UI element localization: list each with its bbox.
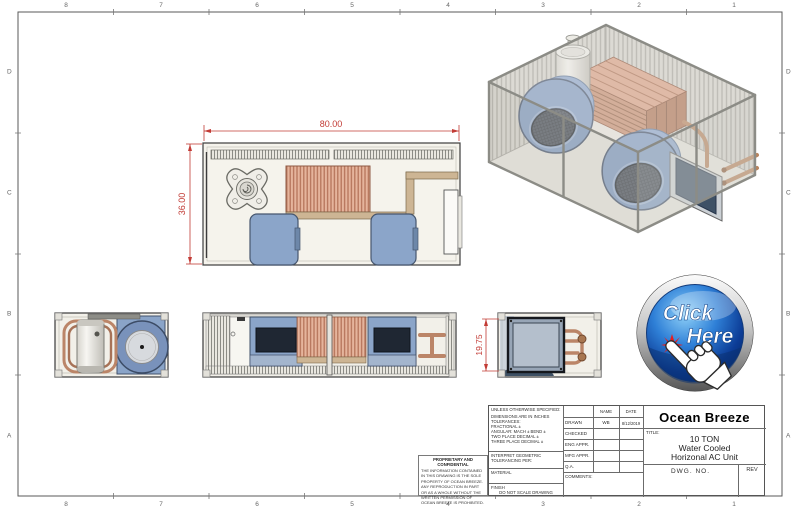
grid-line <box>563 461 643 462</box>
zone-label-top: 6 <box>255 2 259 9</box>
grid-line <box>563 417 643 418</box>
approval-row-label: DRAWN <box>565 420 582 425</box>
grid-line <box>563 428 643 429</box>
grid-line <box>489 468 563 469</box>
zone-label-top: 1 <box>732 2 736 9</box>
spec-header: UNLESS OTHERWISE SPECIFIED: <box>491 407 560 412</box>
grid-line <box>563 439 643 440</box>
coil-top <box>286 166 370 212</box>
tank-end <box>77 320 104 373</box>
zone-label-bottom: 7 <box>159 501 163 508</box>
zone-label-left: B <box>7 311 11 318</box>
grid-line <box>563 450 643 451</box>
drawing-sheet: 80.00 36.00 <box>0 0 800 517</box>
spec-line: THREE PLACE DECIMAL ± <box>491 439 543 444</box>
zone-label-left: D <box>7 69 12 76</box>
approval-row-label: MFG APPR. <box>565 453 590 458</box>
dwg-no-label: DWG. NO. <box>643 468 738 475</box>
plan-view <box>203 143 462 265</box>
zone-label-right: C <box>786 190 791 197</box>
blower-housing-1-front <box>250 317 302 366</box>
zone-label-bottom: 8 <box>64 501 68 508</box>
zone-label-top: 2 <box>637 2 641 9</box>
date-header: DATE <box>619 409 643 414</box>
zone-label-top: 7 <box>159 2 163 9</box>
blower-1-top <box>250 214 298 265</box>
grid-line <box>563 406 564 497</box>
grid-line <box>489 483 563 484</box>
zone-label-bottom: 3 <box>541 501 545 508</box>
zone-label-bottom: 5 <box>350 501 354 508</box>
right-end-view <box>498 313 601 388</box>
zone-label-top: 5 <box>350 2 354 9</box>
click-here-button[interactable]: Click Here <box>637 275 754 396</box>
drawn-date: 8/12/2019 <box>619 421 643 426</box>
approval-row-label: Q.A. <box>565 464 574 469</box>
zone-label-top: 4 <box>446 2 450 9</box>
end-dimension <box>482 319 499 371</box>
proprietary-note: PROPRIETARY AND CONFIDENTIAL THE INFORMA… <box>418 455 488 496</box>
title-block: UNLESS OTHERWISE SPECIFIED: DIMENSIONS A… <box>488 405 765 496</box>
left-end-view <box>55 313 168 377</box>
interpret-label-2: TOLERANCING PER: <box>491 458 532 463</box>
comments-label: COMMENTS: <box>565 474 593 479</box>
zone-label-top: 3 <box>541 2 545 9</box>
dim-width-label: 80.00 <box>320 119 343 129</box>
blower-housing-2-front <box>368 317 416 366</box>
grid-line <box>489 451 563 452</box>
proprietary-header: PROPRIETARY AND CONFIDENTIAL <box>421 457 485 467</box>
zone-label-top: 8 <box>64 2 68 9</box>
company-name: Ocean Breeze <box>643 410 766 425</box>
side-grille <box>206 316 230 374</box>
access-panel <box>444 190 458 254</box>
air-grille <box>211 150 329 159</box>
zone-label-right: A <box>786 433 790 440</box>
title-line: Horizonal AC Unit <box>643 452 766 462</box>
zone-label-bottom: 2 <box>637 501 641 508</box>
front-view <box>203 313 456 377</box>
electrical-panel-end <box>508 318 564 372</box>
grid-line <box>563 472 643 473</box>
name-header: NAME <box>593 409 619 414</box>
isometric-view <box>489 25 757 232</box>
zone-label-bottom: 1 <box>732 501 736 508</box>
zone-label-left: A <box>7 433 11 440</box>
material-label: MATERIAL <box>491 470 512 475</box>
zone-label-right: D <box>786 69 791 76</box>
zone-label-right: B <box>786 311 790 318</box>
blower-2-top <box>371 214 416 265</box>
dim-depth-label: 36.00 <box>177 193 187 216</box>
click-text: Click <box>663 302 715 325</box>
air-grille <box>334 150 453 159</box>
dim-height-label: 19.75 <box>474 334 484 356</box>
proprietary-body: THE INFORMATION CONTAINED IN THIS DRAWIN… <box>421 468 485 506</box>
approval-row-label: CHECKED <box>565 431 587 436</box>
zone-label-bottom: 6 <box>255 501 259 508</box>
do-not-scale-label: DO NOT SCALE DRAWING <box>489 490 563 495</box>
approval-row-label: ENG APPR. <box>565 442 589 447</box>
compressor-symbol <box>227 169 267 209</box>
grid-line <box>643 428 766 429</box>
drawn-name: WB <box>593 420 619 425</box>
rev-label: REV <box>738 467 766 473</box>
grid-line <box>643 464 766 465</box>
zone-label-left: C <box>7 190 12 197</box>
